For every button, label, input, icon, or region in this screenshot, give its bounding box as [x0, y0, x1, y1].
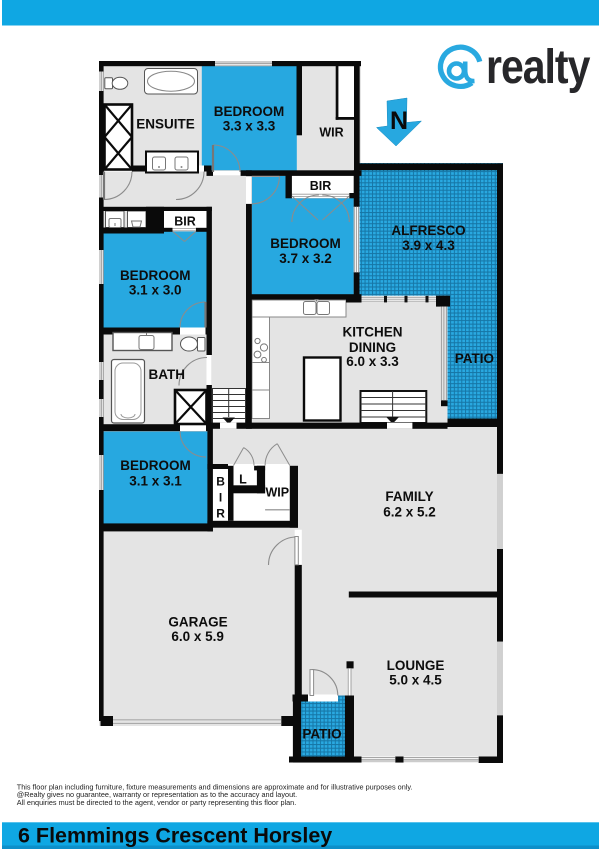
svg-text:GARAGE: GARAGE: [168, 615, 227, 630]
svg-text:I: I: [219, 491, 222, 505]
svg-text:B: B: [216, 475, 225, 489]
svg-text:BEDROOM: BEDROOM: [120, 458, 191, 473]
svg-text:6.2 x 5.2: 6.2 x 5.2: [383, 504, 436, 519]
svg-text:ENSUITE: ENSUITE: [136, 117, 195, 132]
svg-text:BATH: BATH: [149, 367, 186, 382]
svg-text:R: R: [216, 507, 225, 521]
svg-text:ALFRESCO: ALFRESCO: [391, 223, 465, 238]
svg-text:3.3 x 3.3: 3.3 x 3.3: [223, 118, 276, 133]
svg-text:FAMILY: FAMILY: [385, 489, 433, 504]
svg-text:realty: realty: [486, 39, 590, 94]
svg-text:LOUNGE: LOUNGE: [387, 658, 445, 673]
svg-text:BIR: BIR: [174, 215, 196, 229]
svg-text:BEDROOM: BEDROOM: [270, 236, 341, 251]
svg-text:3.1 x 3.1: 3.1 x 3.1: [129, 474, 182, 489]
svg-text:BEDROOM: BEDROOM: [214, 104, 285, 119]
svg-text:BIR: BIR: [310, 179, 332, 193]
svg-text:6 Flemmings Crescent Horsley: 6 Flemmings Crescent Horsley: [18, 824, 332, 848]
svg-text:6.0 x 3.3: 6.0 x 3.3: [346, 354, 399, 369]
svg-text:3.7 x 3.2: 3.7 x 3.2: [279, 251, 332, 266]
svg-text:PATIO: PATIO: [455, 351, 494, 366]
svg-text:DINING: DINING: [349, 340, 396, 355]
svg-text:WIR: WIR: [319, 126, 343, 140]
svg-text:5.0 x 4.5: 5.0 x 4.5: [389, 672, 442, 687]
svg-text:KITCHEN: KITCHEN: [343, 324, 403, 339]
svg-text:All enquiries must be directed: All enquiries must be directed to the ag…: [17, 798, 296, 807]
svg-text:BEDROOM: BEDROOM: [120, 268, 191, 283]
svg-text:WIP: WIP: [265, 485, 289, 499]
svg-text:3.9 x 4.3: 3.9 x 4.3: [402, 238, 455, 253]
svg-text:PATIO: PATIO: [302, 727, 341, 742]
svg-text:L: L: [239, 473, 247, 487]
svg-text:6.0 x 5.9: 6.0 x 5.9: [171, 629, 224, 644]
svg-text:3.1 x 3.0: 3.1 x 3.0: [129, 283, 182, 298]
svg-text:N: N: [390, 107, 408, 135]
